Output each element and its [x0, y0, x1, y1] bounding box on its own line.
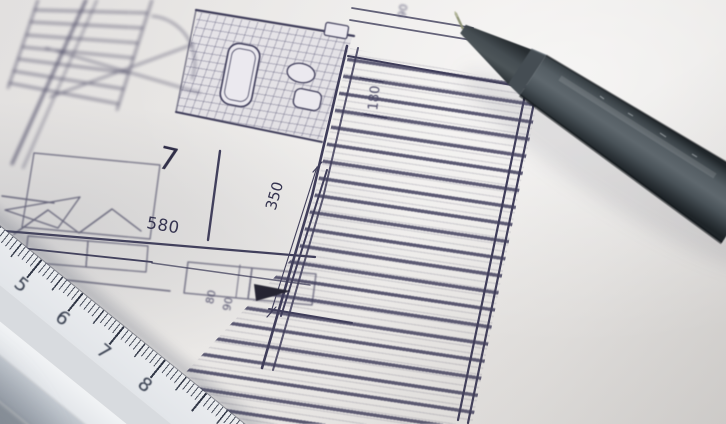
pen [0, 0, 726, 424]
photo-scene: 7 580 350 180 80 90 90 5 6 7 8 [0, 0, 726, 424]
